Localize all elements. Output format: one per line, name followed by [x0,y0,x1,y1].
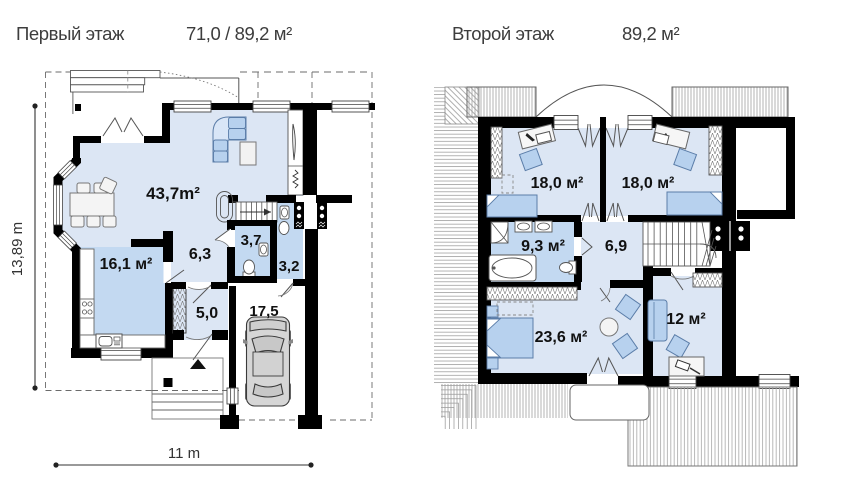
svg-text:16,1 м²: 16,1 м² [100,256,153,273]
svg-text:12 м²: 12 м² [666,311,705,328]
svg-text:Второй этаж: Второй этаж [452,23,555,44]
svg-text:18,0 м²: 18,0 м² [622,175,675,192]
svg-text:5,0: 5,0 [196,305,218,322]
svg-text:Первый этаж: Первый этаж [16,23,125,44]
svg-text:6,3: 6,3 [189,246,211,263]
svg-text:71,0 / 89,2 м²: 71,0 / 89,2 м² [186,23,292,44]
svg-text:89,2 м²: 89,2 м² [622,23,679,44]
svg-text:3,7: 3,7 [241,232,262,249]
svg-text:9,3 м²: 9,3 м² [521,238,565,255]
svg-text:11 m: 11 m [168,445,200,462]
svg-text:17,5: 17,5 [249,303,278,320]
svg-text:3,2: 3,2 [279,258,300,275]
svg-text:23,6 м²: 23,6 м² [535,329,588,346]
svg-text:6,9: 6,9 [605,238,627,255]
svg-text:18,0 м²: 18,0 м² [531,175,584,192]
svg-text:13,89 m: 13,89 m [9,222,26,276]
svg-text:43,7m²: 43,7m² [146,184,200,203]
